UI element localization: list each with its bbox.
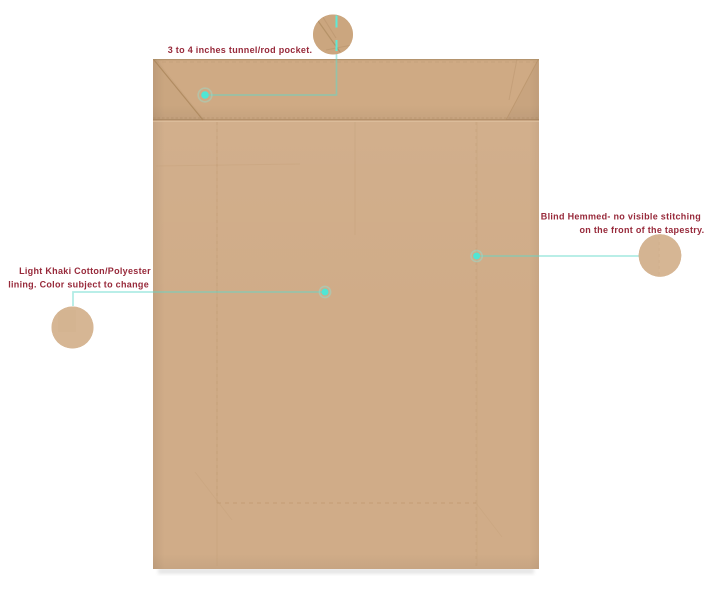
svg-text:Light Khaki Cotton/Polyester: Light Khaki Cotton/Polyester	[19, 266, 151, 276]
svg-text:3 to 4 inches tunnel/rod pocke: 3 to 4 inches tunnel/rod pocket.	[168, 45, 313, 55]
svg-text:on the front of the tapestry.: on the front of the tapestry.	[579, 225, 704, 235]
svg-text:lining. Color subject to chang: lining. Color subject to change	[8, 280, 149, 290]
svg-text:Blind Hemmed- no visible stitc: Blind Hemmed- no visible stitching	[541, 212, 701, 222]
